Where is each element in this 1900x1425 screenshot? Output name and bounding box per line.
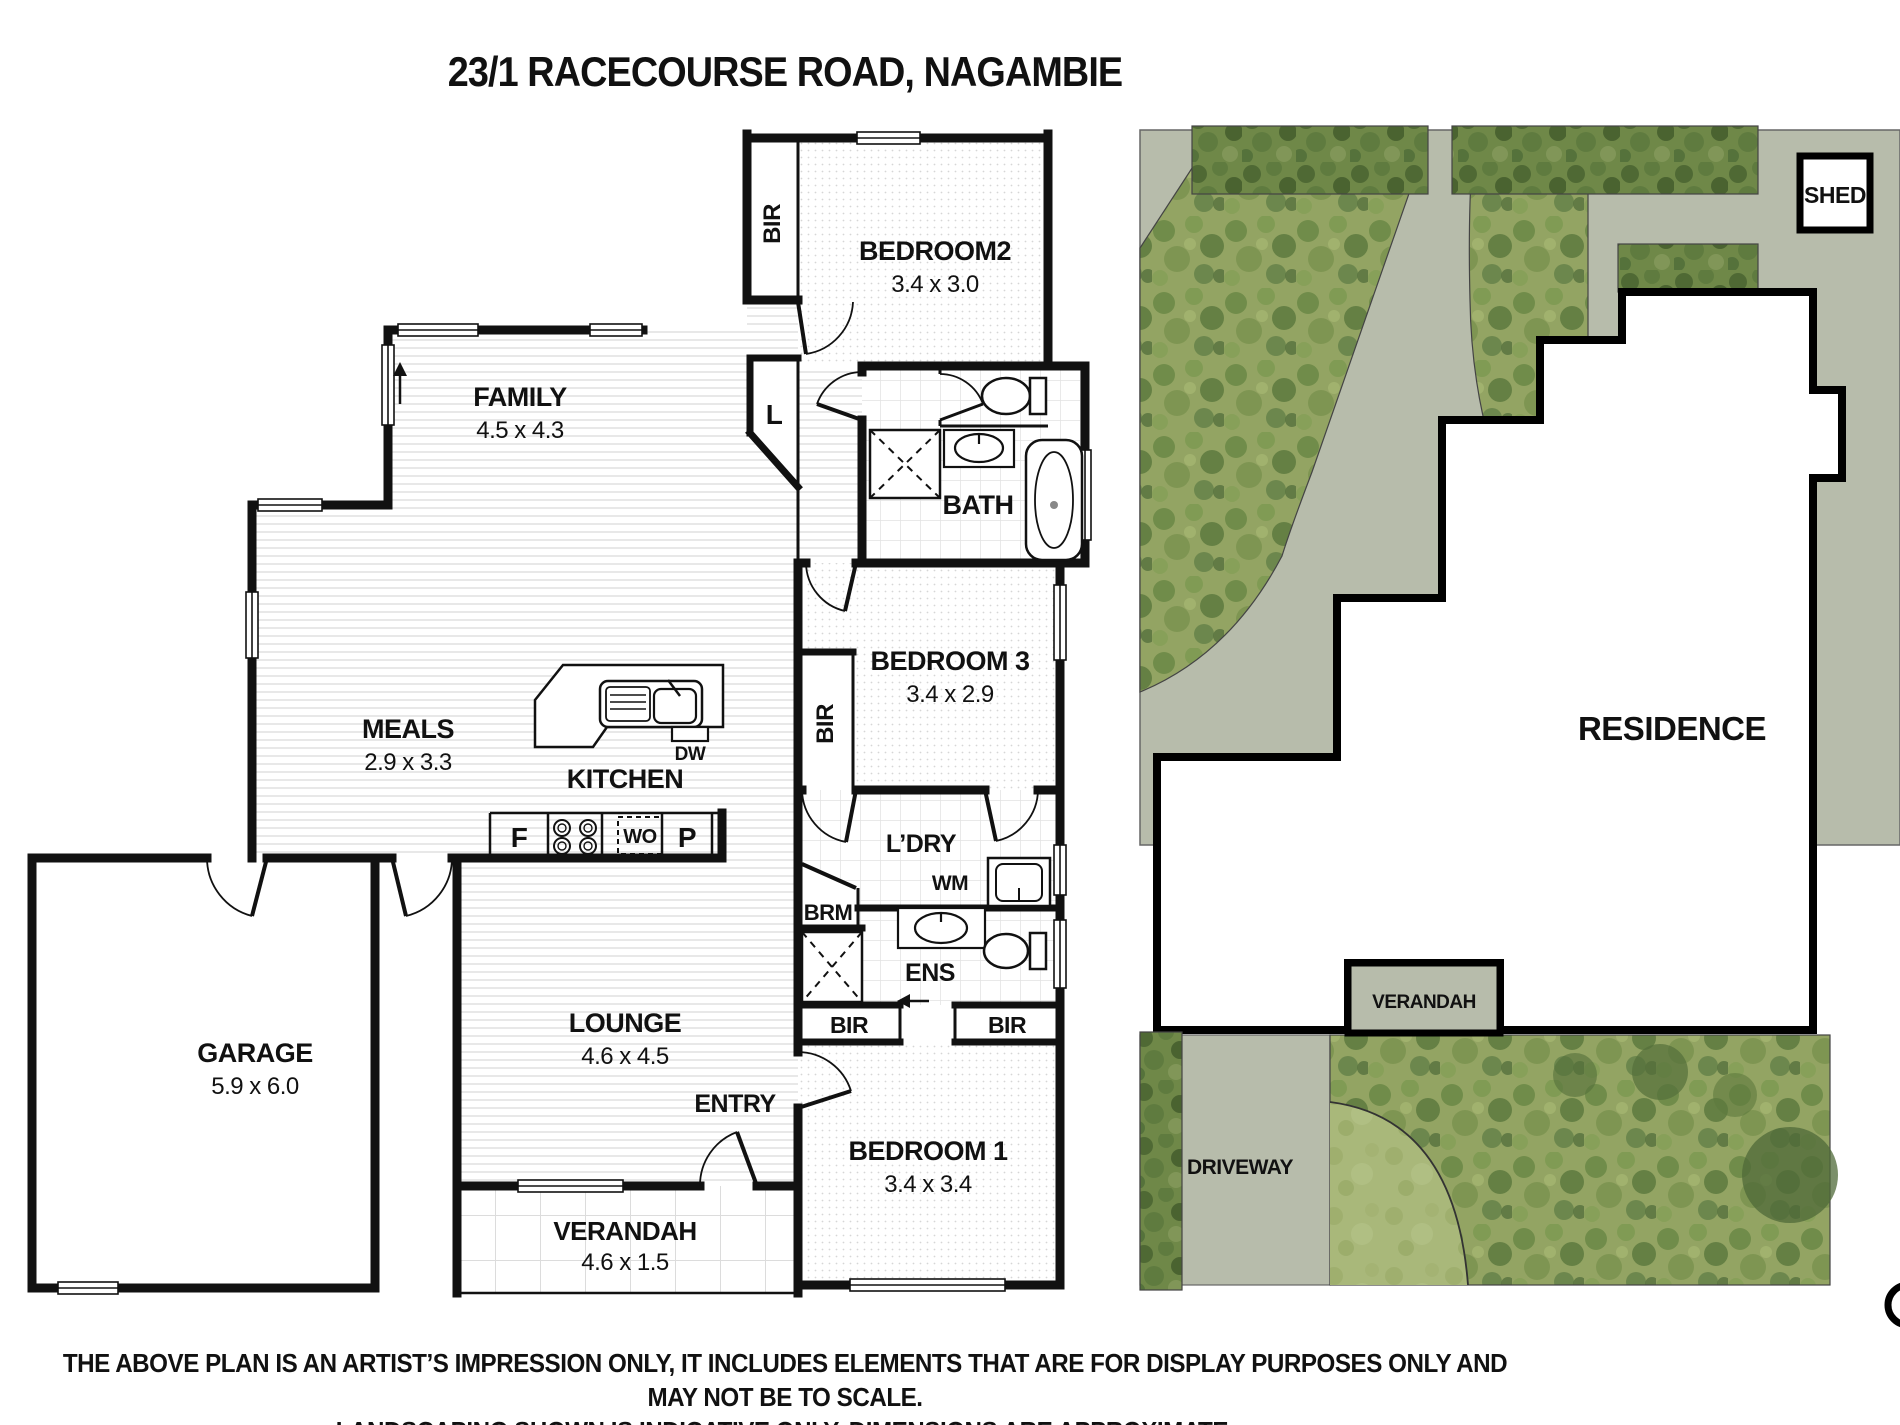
dims-verandah: 4.6 x 1.5 [581,1249,669,1276]
door-side [392,858,452,916]
label-site-verandah: VERANDAH [1372,992,1476,1013]
window [58,1282,118,1294]
label-entry: ENTRY [694,1090,776,1118]
washing-machine-icon [988,858,1050,906]
disclaimer-line1: THE ABOVE PLAN IS AN ARTIST’S IMPRESSION… [55,1346,1515,1414]
hedge-row [1140,1032,1182,1290]
dims-bedroom3: 3.4 x 2.9 [906,681,994,708]
label-kitchen: KITCHEN [567,764,684,794]
label-driveway: DRIVEWAY [1187,1156,1294,1179]
window [1054,845,1066,895]
site-plan: SHED RESIDENCE VERANDAH DRIVEWAY [1140,126,1900,1325]
tree [1742,1127,1838,1223]
window [850,1279,1005,1291]
hedge-row [1192,126,1428,194]
label-broom: BRM [804,900,853,925]
label-lounge: LOUNGE [569,1008,682,1038]
compass-circle [1888,1285,1900,1325]
label-shed: SHED [1804,182,1866,208]
window [398,324,478,336]
disclaimer: THE ABOVE PLAN IS AN ARTIST’S IMPRESSION… [55,1346,1515,1425]
dims-family: 4.5 x 4.3 [476,417,564,444]
laundry-fixtures [988,858,1050,906]
dishwasher-icon [672,727,708,741]
door-garage [207,858,267,916]
toilet-icon [982,378,1046,414]
label-verandah: VERANDAH [553,1216,696,1246]
floorplan-page: 23/1 RACECOURSE ROAD, NAGAMBIE [0,0,1900,1425]
label-bedroom1: BEDROOM 1 [848,1136,1008,1166]
label-bedroom3: BEDROOM 3 [870,646,1030,676]
label-fridge: F [511,822,528,853]
toilet-icon [984,933,1046,969]
label-linen: L [766,399,783,430]
window [258,499,322,511]
label-bath: BATH [943,490,1014,520]
vanity-icon [944,430,1014,467]
label-dishwasher: DW [675,744,706,765]
shower-icon [802,932,862,1002]
label-bedroom2: BEDROOM2 [859,236,1011,266]
dims-lounge: 4.6 x 4.5 [581,1043,669,1070]
vanity-icon [898,908,985,948]
label-bir-bed2: BIR [759,204,786,244]
label-garage: GARAGE [197,1038,313,1068]
dims-bedroom2: 3.4 x 3.0 [891,271,979,298]
window [382,345,394,425]
window [1054,920,1066,988]
label-family: FAMILY [473,382,567,412]
label-ensuite: ENS [905,959,955,987]
floor-plan: BEDROOM2 3.4 x 3.0 BIR FAMILY 4.5 x 4.3 … [32,132,1091,1294]
window [518,1180,623,1192]
label-laundry: L’DRY [886,830,957,858]
window [590,324,642,336]
label-bir-left: BIR [830,1012,869,1038]
label-wall-oven: WO [623,826,656,848]
dims-bedroom1: 3.4 x 3.4 [884,1171,972,1198]
tree [1713,1073,1757,1117]
window [246,592,258,658]
bathtub-icon [1026,440,1082,560]
label-residence: RESIDENCE [1578,710,1766,747]
hedge-row [1452,126,1758,194]
window [1054,585,1066,660]
tree [1553,1053,1597,1097]
dims-garage: 5.9 x 6.0 [211,1073,299,1100]
label-washing-machine: WM [932,872,968,895]
disclaimer-line2: LANDSCAPING SHOWN IS INDICATIVE ONLY. DI… [55,1414,1515,1425]
dims-meals: 2.9 x 3.3 [364,749,452,776]
window [857,132,920,144]
plan-canvas: BEDROOM2 3.4 x 3.0 BIR FAMILY 4.5 x 4.3 … [0,0,1900,1425]
label-bir-right: BIR [988,1012,1027,1038]
tree [1632,1044,1688,1100]
hedge-row [1618,244,1758,292]
shower-icon [870,430,940,498]
label-bir-bed3: BIR [812,704,839,744]
label-meals: MEALS [362,714,454,744]
label-pantry: P [678,822,696,853]
